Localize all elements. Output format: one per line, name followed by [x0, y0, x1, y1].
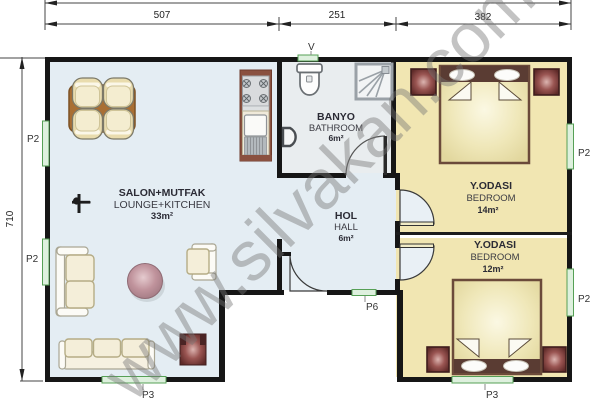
svg-text:Y.ODASI: Y.ODASI [470, 180, 512, 192]
svg-text:P3: P3 [486, 390, 499, 400]
svg-text:P2: P2 [578, 148, 591, 159]
svg-text:BEDROOM: BEDROOM [466, 193, 515, 204]
svg-text:P2: P2 [26, 254, 39, 265]
svg-text:P2: P2 [578, 294, 591, 305]
svg-text:BEDROOM: BEDROOM [470, 252, 519, 263]
svg-text:Y.ODASI: Y.ODASI [474, 239, 516, 251]
svg-text:P6: P6 [366, 302, 379, 313]
svg-text:P2: P2 [27, 134, 40, 145]
svg-text:12m²: 12m² [482, 264, 503, 274]
svg-text:14m²: 14m² [477, 205, 498, 215]
svg-text:710: 710 [5, 210, 16, 227]
svg-text:507: 507 [154, 10, 171, 21]
svg-text:6m²: 6m² [338, 233, 353, 243]
svg-text:HALL: HALL [334, 222, 358, 233]
svg-text:LOUNGE+KITCHEN: LOUNGE+KITCHEN [114, 199, 211, 211]
svg-text:251: 251 [329, 10, 346, 21]
svg-text:SALON+MUTFAK: SALON+MUTFAK [119, 187, 206, 199]
svg-text:33m²: 33m² [151, 211, 173, 222]
